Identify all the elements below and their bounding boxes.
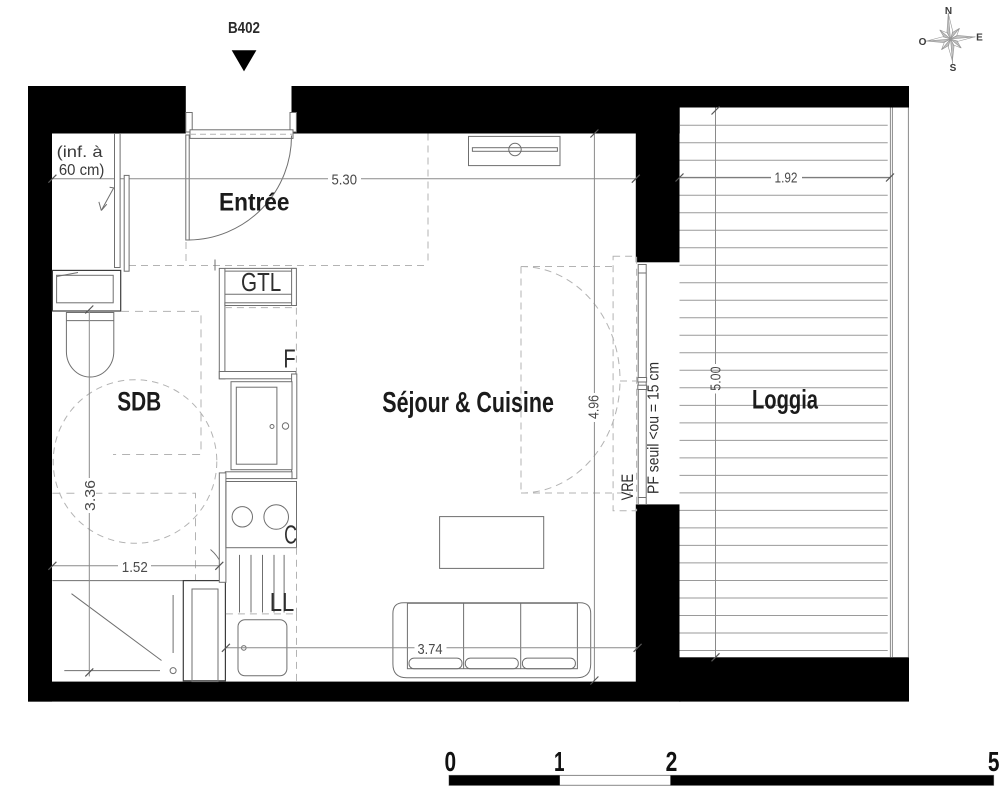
svg-text:60 cm): 60 cm)	[59, 162, 105, 179]
svg-text:SDB: SDB	[117, 387, 161, 417]
svg-text:5.00: 5.00	[707, 367, 724, 391]
svg-text:4.96: 4.96	[585, 395, 602, 419]
svg-text:F: F	[283, 343, 295, 373]
svg-text:C: C	[284, 519, 297, 549]
svg-text:PF seuil <ou = 15 cm: PF seuil <ou = 15 cm	[646, 362, 663, 494]
svg-text:(inf. à: (inf. à	[57, 144, 103, 161]
svg-text:3.74: 3.74	[418, 641, 443, 658]
svg-text:VRE: VRE	[618, 474, 637, 500]
svg-text:O: O	[919, 37, 927, 48]
svg-text:3.36: 3.36	[82, 480, 99, 511]
svg-text:Entrée: Entrée	[219, 189, 290, 217]
svg-text:E: E	[976, 33, 983, 44]
svg-text:GTL: GTL	[241, 267, 281, 297]
svg-text:0: 0	[445, 746, 457, 777]
svg-text:5.30: 5.30	[332, 171, 358, 188]
svg-text:1: 1	[554, 746, 565, 777]
svg-text:2: 2	[666, 746, 678, 777]
svg-text:5: 5	[988, 746, 1000, 777]
svg-text:LL: LL	[270, 587, 295, 617]
svg-text:Loggia: Loggia	[752, 385, 819, 415]
svg-text:S: S	[950, 63, 957, 74]
svg-text:B402: B402	[228, 20, 260, 37]
svg-text:N: N	[945, 6, 952, 17]
svg-text:1.92: 1.92	[775, 170, 798, 187]
svg-text:Séjour & Cuisine: Séjour & Cuisine	[382, 387, 554, 419]
svg-text:1.52: 1.52	[122, 559, 148, 576]
